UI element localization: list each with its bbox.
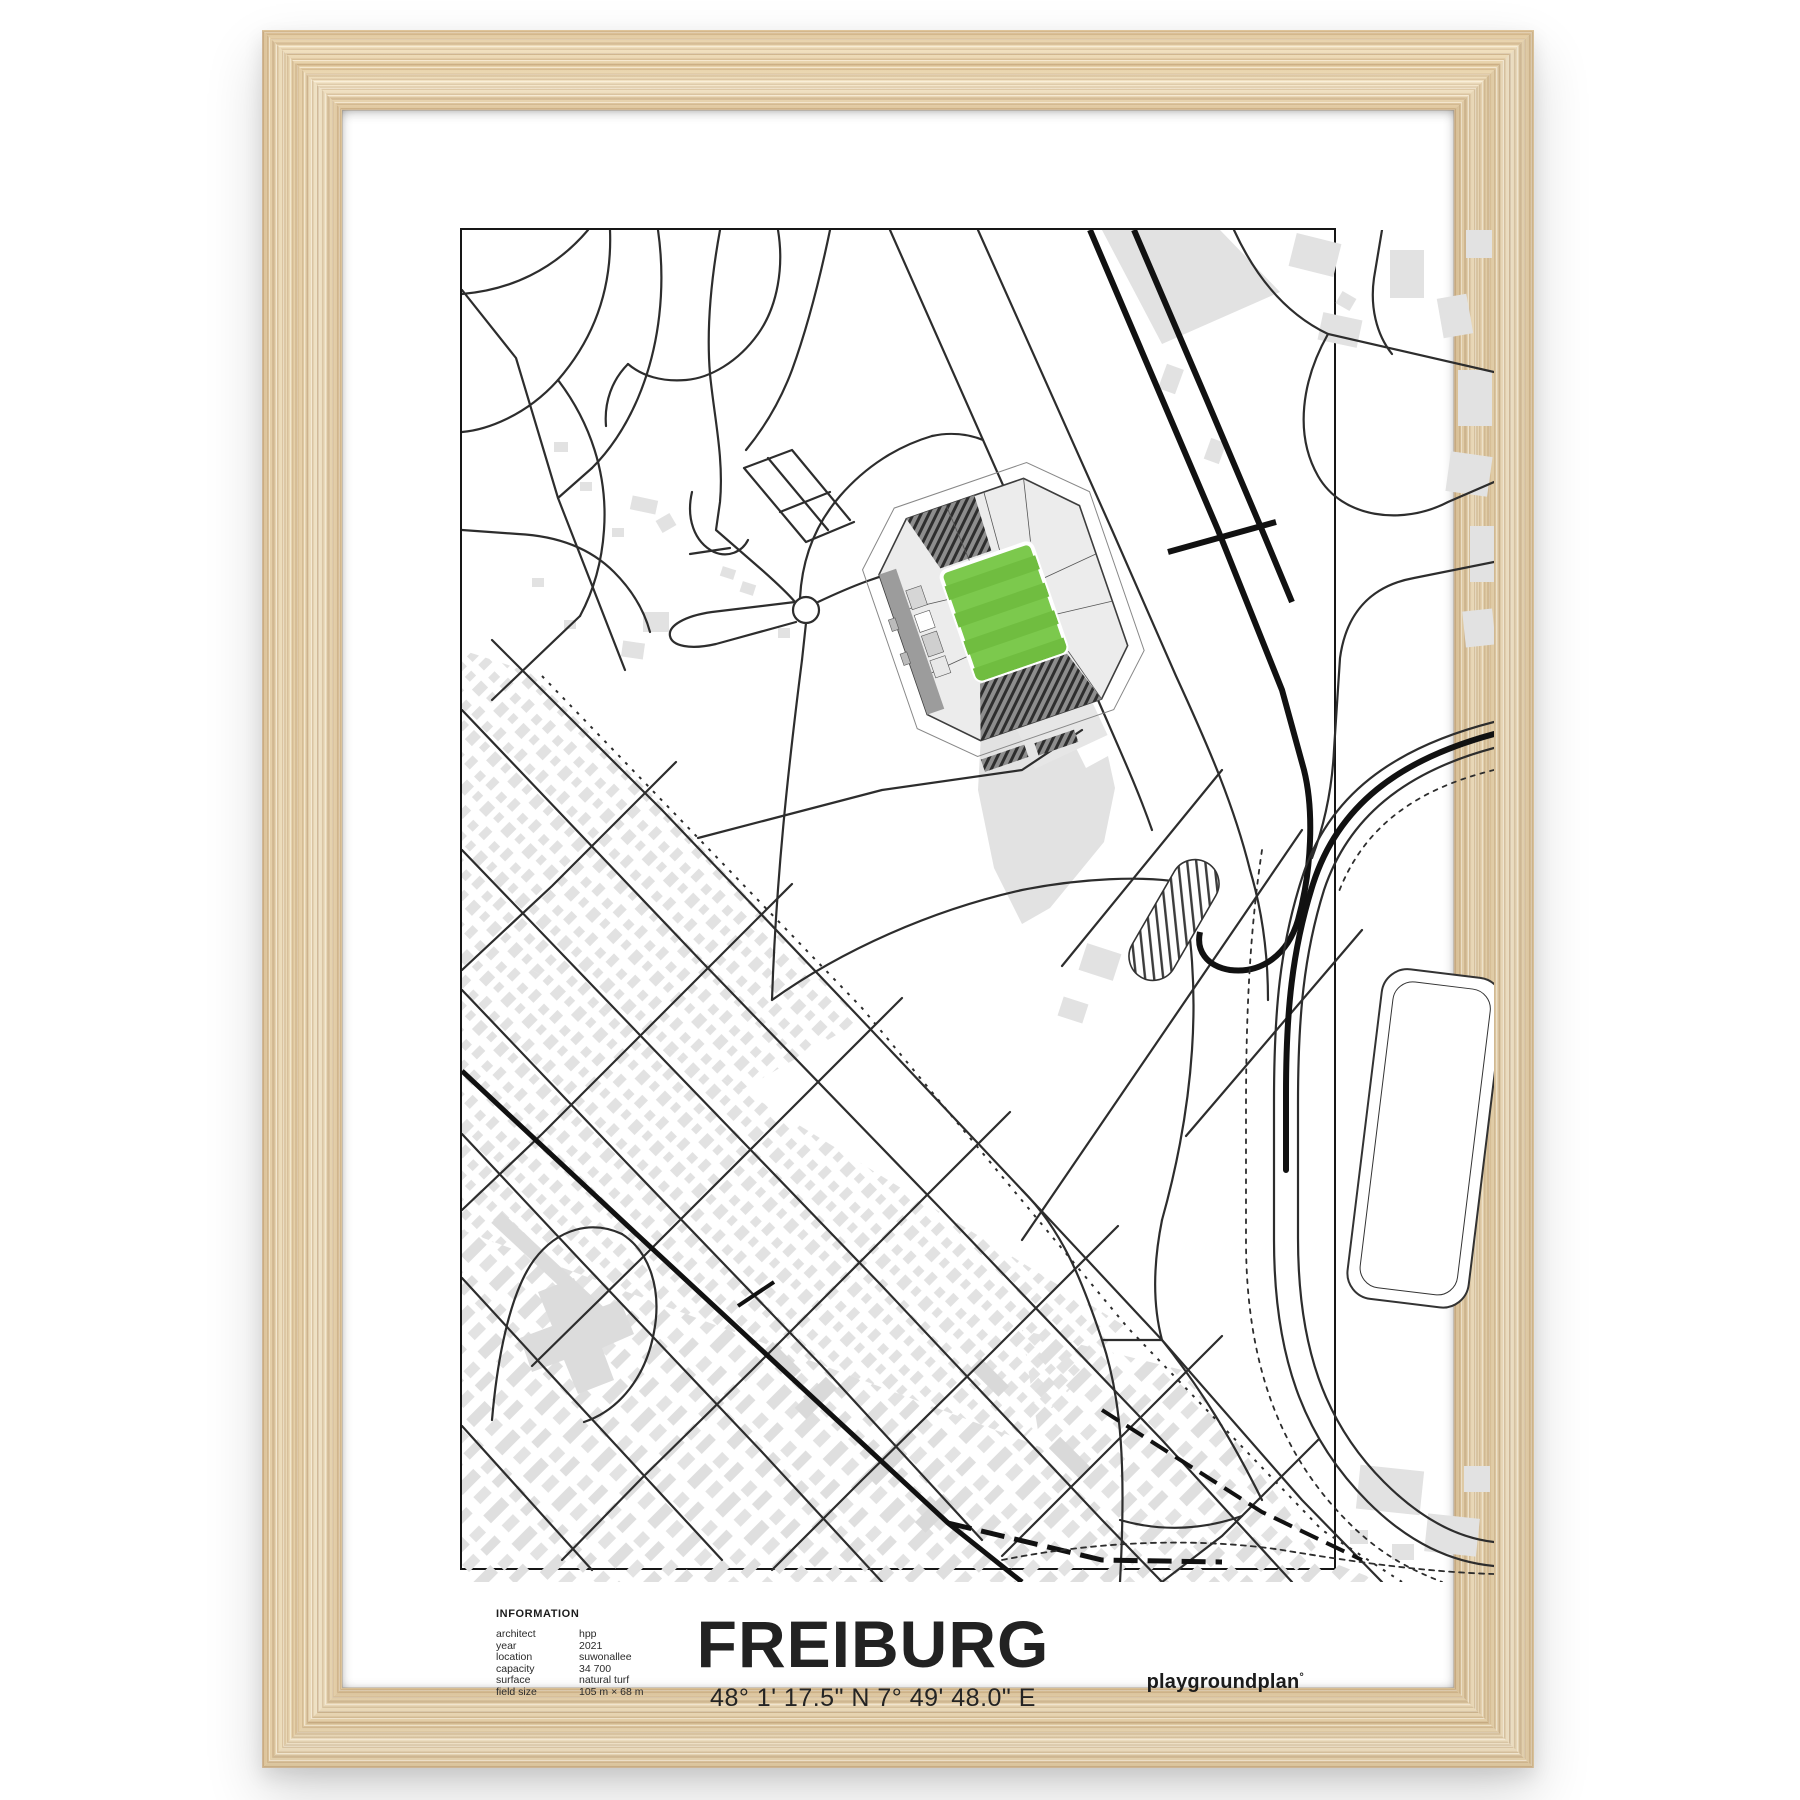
sports-field [1344, 966, 1494, 1310]
residential-texture [462, 650, 1382, 1582]
athletics-oval [1120, 851, 1228, 989]
poster: INFORMATION architecthpp year2021 locati… [460, 228, 1336, 1570]
brand-logo: playgroundplan° [1147, 1671, 1304, 1694]
product-photo: { "poster": { "title": "FREIBURG", "coor… [0, 0, 1800, 1800]
frame-top [262, 30, 1534, 110]
brand-degree-mark: ° [1299, 1671, 1304, 1683]
frame-left [262, 30, 342, 1768]
wooden-frame: INFORMATION architecthpp year2021 locati… [262, 30, 1534, 1768]
map-drawing [462, 230, 1494, 1582]
title-block: FREIBURG 48° 1' 17.5" N 7° 49' 48.0" E [462, 1612, 1284, 1713]
poster-title: FREIBURG [462, 1612, 1284, 1676]
mat-border: INFORMATION architecthpp year2021 locati… [342, 110, 1454, 1688]
